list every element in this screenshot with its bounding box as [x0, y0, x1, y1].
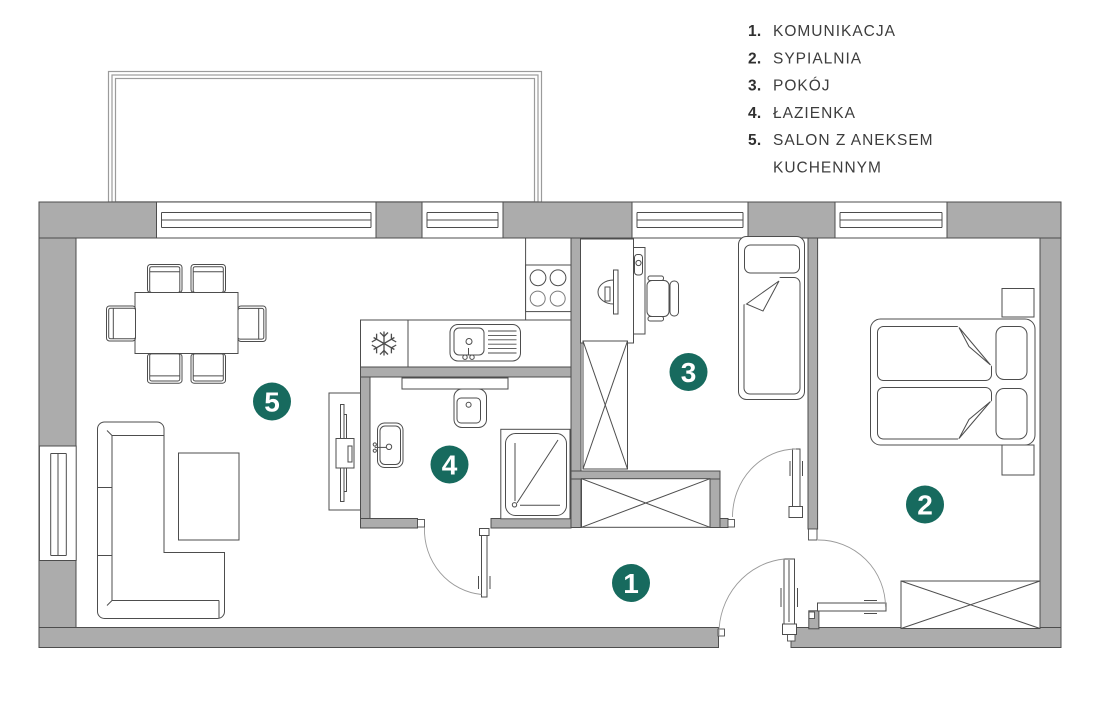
svg-text:POKÓJ: POKÓJ — [773, 78, 831, 95]
svg-text:3: 3 — [681, 357, 697, 388]
svg-text:1.: 1. — [748, 23, 762, 40]
svg-text:KOMUNIKACJA: KOMUNIKACJA — [773, 23, 896, 40]
svg-text:ŁAZIENKA: ŁAZIENKA — [773, 105, 856, 122]
svg-text:2: 2 — [917, 490, 933, 521]
svg-text:5.: 5. — [748, 132, 762, 149]
svg-text:1: 1 — [623, 568, 639, 599]
svg-text:4: 4 — [442, 450, 458, 481]
svg-text:2.: 2. — [748, 50, 762, 67]
svg-text:SYPIALNIA: SYPIALNIA — [773, 50, 862, 67]
svg-text:5: 5 — [264, 387, 280, 418]
svg-text:SALON Z ANEKSEM: SALON Z ANEKSEM — [773, 132, 934, 149]
svg-text:3.: 3. — [748, 78, 762, 95]
svg-text:KUCHENNYM: KUCHENNYM — [773, 160, 882, 177]
svg-text:4.: 4. — [748, 105, 762, 122]
